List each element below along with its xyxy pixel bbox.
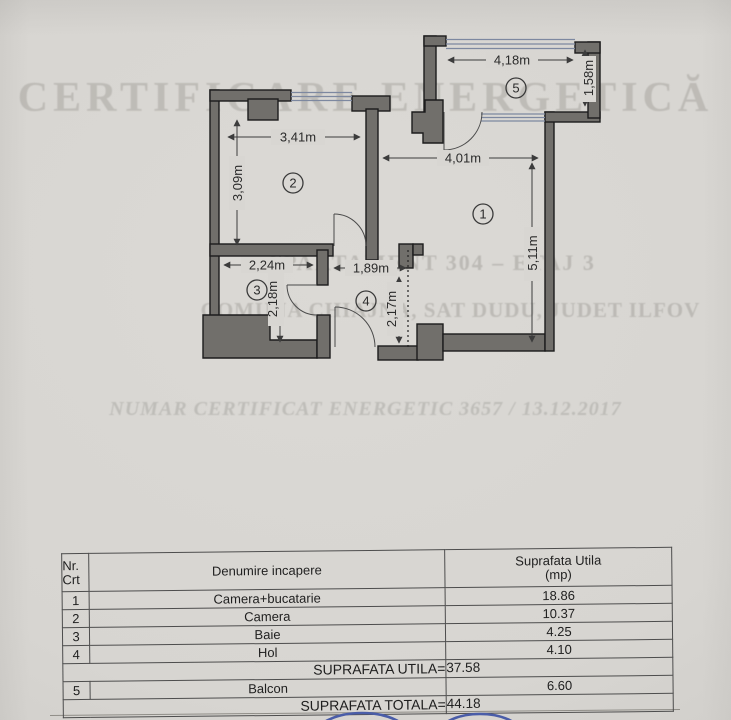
dimension-label: 2,17m <box>384 291 399 327</box>
header-nr-crt: Nr. Crt <box>62 553 89 591</box>
dimension-label: 4,01m <box>445 151 481 166</box>
stamp-ellipse-right <box>438 714 522 720</box>
row-nr: 2 <box>62 609 89 627</box>
svg-text:2: 2 <box>289 176 296 191</box>
room-marker-5: 5 <box>506 78 526 98</box>
row-area: 10.37 <box>445 603 672 623</box>
svg-text:3: 3 <box>253 283 260 298</box>
row-area: 4.25 <box>445 621 672 641</box>
dimension-label: 5,11m <box>525 235 540 270</box>
room-marker-2: 2 <box>283 173 303 193</box>
areas-table-wrap: Nr. Crt Denumire incapere Suprafata Util… <box>61 547 674 718</box>
dimension-label: 3,41m <box>280 130 316 145</box>
stamp-marks <box>300 707 540 720</box>
row-nr: 4 <box>63 645 90 663</box>
dimension-label: 2,24m <box>249 258 285 273</box>
row-nr: 1 <box>62 591 89 609</box>
row-area: 18.86 <box>445 585 672 605</box>
row-nr: 5 <box>63 681 90 699</box>
table-header-row: Nr. Crt Denumire incapere Suprafata Util… <box>62 547 672 591</box>
header-denumire: Denumire incapere <box>89 550 445 592</box>
room-markers: 1 2 3 4 5 <box>247 78 526 311</box>
header-crt: Crt <box>62 572 88 586</box>
dimension-label: 3,09m <box>230 165 245 201</box>
dimension-label: 1,58m <box>581 60 596 96</box>
row-area: 6.60 <box>446 675 673 695</box>
subtotal-value: 37.58 <box>446 657 673 677</box>
floor-plan: 3,41m 4,01m 4,18m 2,24m 1,89m 3,09m 2,18… <box>0 0 731 500</box>
row-nr: 3 <box>62 627 89 645</box>
row-area: 4.10 <box>446 639 673 659</box>
svg-text:1: 1 <box>479 207 486 222</box>
scanned-certificate-page: CERTIFICARE ENERGETICĂ APARTAMENT 304 – … <box>0 0 731 720</box>
room-marker-3: 3 <box>247 280 267 300</box>
header-suprafata-line2: (mp) <box>445 566 671 582</box>
stamp-ellipse-left <box>314 713 410 720</box>
dimension-label: 1,89m <box>353 261 389 276</box>
dimension-label: 2,18m <box>265 281 280 317</box>
areas-table: Nr. Crt Denumire incapere Suprafata Util… <box>61 547 674 718</box>
room-marker-4: 4 <box>356 291 376 311</box>
svg-text:4: 4 <box>362 294 369 309</box>
header-nr: Nr. <box>62 559 88 573</box>
dimension-label: 4,18m <box>494 53 530 68</box>
svg-text:5: 5 <box>512 81 519 96</box>
room-marker-1: 1 <box>473 204 493 224</box>
header-suprafata: Suprafata Utila (mp) <box>445 547 672 587</box>
